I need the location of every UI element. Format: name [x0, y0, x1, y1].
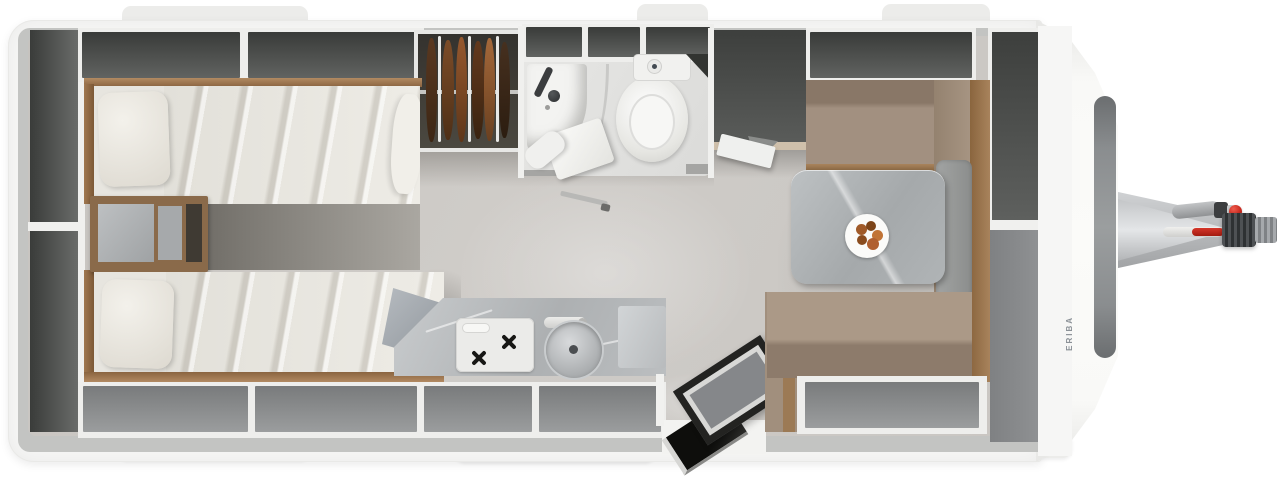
- rear-cabinet-divider: [28, 222, 82, 231]
- overhead-lockers-dinette: [806, 28, 976, 82]
- lockers-under-dinette: [797, 376, 987, 434]
- front-cap-interior: [1038, 26, 1072, 456]
- brand-label: ERIBA: [1062, 296, 1078, 370]
- wardrobe: [414, 30, 522, 152]
- bed-wood-edge: [84, 372, 444, 382]
- hanging-clothes: [472, 41, 484, 139]
- locker: [810, 32, 972, 78]
- burner-grate-icon: [470, 349, 488, 367]
- tall-cabinet: [714, 30, 806, 144]
- shower-drain: [545, 105, 550, 110]
- food: [857, 235, 867, 245]
- hitch-coupling-end: [1255, 217, 1277, 243]
- cabinet-interior: [992, 32, 1040, 220]
- counter-extension: [618, 306, 666, 368]
- burner-grate-icon: [500, 333, 518, 351]
- front-window: [1094, 96, 1116, 358]
- bed-headboard: [84, 270, 94, 374]
- chest-marble-top: [98, 204, 154, 262]
- hanging-clothes: [426, 38, 437, 142]
- hanging-clothes: [456, 37, 467, 142]
- locker: [539, 386, 661, 432]
- brand-text: ERIBA: [1066, 316, 1074, 351]
- pillow: [97, 91, 170, 187]
- sideboard-divider: [986, 220, 1044, 230]
- locker: [82, 32, 240, 78]
- hanging-clothes: [499, 42, 510, 138]
- pillow: [99, 279, 174, 369]
- dinette-bench-bottom: [767, 292, 972, 378]
- locker: [83, 386, 248, 432]
- single-bed-top: [94, 86, 420, 204]
- kitchen-end-partition: [656, 374, 664, 426]
- bed-headboard: [84, 84, 94, 204]
- stove-lid-handle: [462, 323, 490, 333]
- hanging-clothes: [484, 38, 495, 141]
- locker: [588, 27, 640, 57]
- clothes-hanger: [468, 36, 471, 142]
- clothes-hanger: [438, 36, 441, 142]
- front-sideboard: [990, 230, 1040, 442]
- sink-drain: [569, 345, 578, 354]
- single-bed-bottom: [94, 272, 444, 374]
- flush-button-dot: [652, 64, 657, 69]
- hitch-coupling: [1222, 213, 1256, 247]
- bench-backboard: [970, 80, 990, 382]
- overhead-lockers-bedroom: [78, 28, 424, 82]
- locker: [526, 27, 582, 57]
- toilet-seat: [629, 94, 675, 150]
- locker: [805, 382, 979, 428]
- locker: [248, 32, 420, 78]
- hanging-clothes: [442, 40, 454, 140]
- locker: [424, 386, 532, 432]
- locker: [646, 27, 710, 57]
- under-window-lockers: [78, 382, 666, 438]
- food: [867, 238, 879, 250]
- caravan-floor-plan: ERIBA: [0, 0, 1280, 486]
- hitch-handle-red-grip: [1192, 228, 1224, 236]
- toilet-cistern: [633, 54, 691, 81]
- front-corner-cabinet: [988, 28, 1044, 224]
- bathroom-wall: [524, 170, 558, 176]
- rear-storage-cabinet: [30, 30, 80, 432]
- locker: [255, 386, 417, 432]
- chest-marble-top: [158, 206, 182, 260]
- chest-niche: [186, 204, 202, 262]
- duvet: [164, 86, 420, 204]
- bedside-chest: [90, 196, 208, 272]
- shower-head: [548, 90, 560, 102]
